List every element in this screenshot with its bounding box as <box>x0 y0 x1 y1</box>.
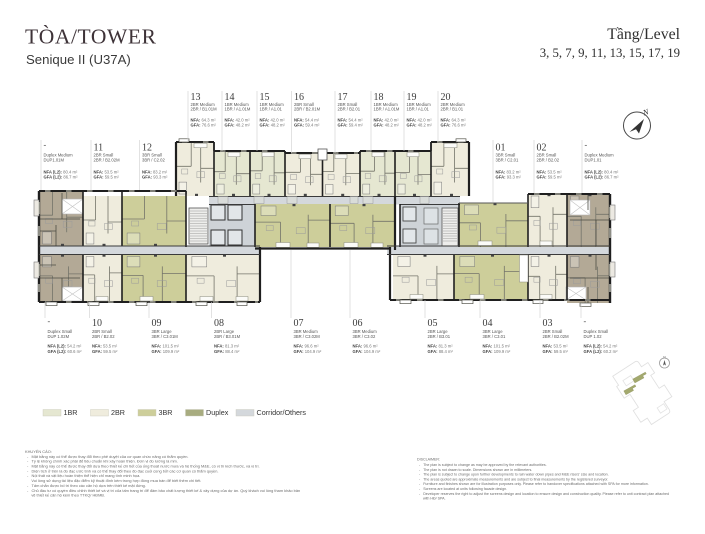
svg-text:07: 07 <box>294 318 304 329</box>
svg-text:GFA: 48.2 m²: GFA: 48.2 m² <box>374 122 400 127</box>
svg-text:3, 5, 7, 9, 11, 13, 15, 17, 19: 3, 5, 7, 9, 11, 13, 15, 17, 19 <box>540 46 680 60</box>
svg-text:NFA: 81.3 m²: NFA: 81.3 m² <box>428 344 454 349</box>
svg-text:NFA: 101.5 m²: NFA: 101.5 m² <box>483 344 511 349</box>
svg-text:- The plan is not drawn to s: - The plan is not drawn to scale. Dimens… <box>419 468 532 472</box>
svg-text:GFA (L2): 86.7 m²: GFA (L2): 86.7 m² <box>585 174 620 179</box>
svg-text:1BR / A1.01: 1BR / A1.01 <box>260 106 283 111</box>
svg-text:2BR / B2.02M: 2BR / B2.02M <box>543 334 570 339</box>
svg-text:- The plan is subject to cha: - The plan is subject to change as may b… <box>419 463 547 467</box>
svg-text:GFA: 59.5 m²: GFA: 59.5 m² <box>537 174 563 179</box>
svg-text:- The areas quoted are appro: - The areas quoted are approximate measu… <box>419 477 608 481</box>
svg-text:2BR / B2.02: 2BR / B2.02 <box>537 158 560 163</box>
svg-text:NFA (L2): 54.2 m²: NFA (L2): 54.2 m² <box>584 344 618 349</box>
svg-text:- Screens are located at uni: - Screens are located at units following… <box>419 487 507 491</box>
svg-text:GFA (L2): 60.6 m²: GFA (L2): 60.6 m² <box>48 349 83 354</box>
svg-text:09: 09 <box>152 318 162 329</box>
svg-text:NFA: 81.3 m²: NFA: 81.3 m² <box>214 344 240 349</box>
svg-text:Senique II (U37A): Senique II (U37A) <box>26 52 131 67</box>
svg-text:1BR / A1.01M: 1BR / A1.01M <box>225 106 251 111</box>
svg-text:GFA: 109.9 m²: GFA: 109.9 m² <box>152 349 180 354</box>
svg-text:GFA: 93.3 m²: GFA: 93.3 m² <box>496 174 522 179</box>
svg-text:04: 04 <box>483 318 493 329</box>
svg-text:DISCLAIMER:: DISCLAIMER: <box>417 458 440 462</box>
svg-text:NFA: 96.6 m²: NFA: 96.6 m² <box>294 344 320 349</box>
svg-text:GFA: 59.5 m²: GFA: 59.5 m² <box>543 349 569 354</box>
svg-text:2BR / B3.01M: 2BR / B3.01M <box>214 334 241 339</box>
svg-text:1BR: 1BR <box>64 408 78 417</box>
svg-text:-: - <box>584 317 587 326</box>
svg-text:-: - <box>44 141 47 150</box>
svg-text:GFA: 104.9 m²: GFA: 104.9 m² <box>353 349 381 354</box>
svg-text:vẽ thiết kế căn hộ kèm theo TT: vẽ thiết kế căn hộ kèm theo TTKQ/ HĐMB. <box>27 493 105 498</box>
svg-text:GFA: 59.4 m²: GFA: 59.4 m² <box>294 122 320 127</box>
svg-text:1BR / A1.01: 1BR / A1.01 <box>407 106 430 111</box>
svg-text:3BR: 3BR <box>159 408 173 417</box>
svg-text:3BR / C3.02M: 3BR / C3.02M <box>294 334 321 339</box>
svg-text:06: 06 <box>353 318 363 329</box>
svg-text:2BR: 2BR <box>111 408 125 417</box>
svg-text:2BR / B2.01M: 2BR / B2.01M <box>294 106 321 111</box>
svg-text:Duplex: Duplex <box>206 408 229 417</box>
svg-text:DUP 1.02: DUP 1.02 <box>584 334 603 339</box>
svg-text:with HĐ/ SPA.: with HĐ/ SPA. <box>419 497 446 501</box>
svg-text:DUP1.01M: DUP1.01M <box>44 158 65 163</box>
svg-text:Corridor/Others: Corridor/Others <box>257 408 307 417</box>
svg-text:DUP 1.02M: DUP 1.02M <box>48 334 70 339</box>
svg-text:- Furniture and finishes sho: - Furniture and finishes shown are for i… <box>419 482 649 486</box>
svg-text:-: - <box>585 141 588 150</box>
svg-text:TÒA/TOWER: TÒA/TOWER <box>25 25 157 49</box>
svg-text:03: 03 <box>543 318 553 329</box>
svg-text:NFA (L2): 54.2 m²: NFA (L2): 54.2 m² <box>48 344 82 349</box>
svg-text:2BR / B3.01: 2BR / B3.01 <box>428 334 451 339</box>
svg-text:NFA: 101.5 m²: NFA: 101.5 m² <box>152 344 180 349</box>
svg-text:GFA: 88.4 m²: GFA: 88.4 m² <box>428 349 454 354</box>
svg-text:2BR / B2.02M: 2BR / B2.02M <box>94 158 121 163</box>
svg-text:Tầng/Level: Tầng/Level <box>607 26 680 43</box>
svg-text:GFA (L2): 86.7 m²: GFA (L2): 86.7 m² <box>44 174 79 179</box>
svg-text:3BR / C2.01: 3BR / C2.01 <box>496 158 519 163</box>
svg-text:GFA: 48.2 m²: GFA: 48.2 m² <box>260 122 286 127</box>
svg-text:-: - <box>48 317 51 326</box>
svg-text:NFA: 53.5 m²: NFA: 53.5 m² <box>543 344 569 349</box>
svg-text:GFA: 48.2 m²: GFA: 48.2 m² <box>407 122 433 127</box>
svg-text:3BR / C3.01: 3BR / C3.01 <box>483 334 506 339</box>
svg-text:10: 10 <box>92 318 102 329</box>
svg-text:08: 08 <box>214 318 224 329</box>
svg-text:GFA: 48.2 m²: GFA: 48.2 m² <box>225 122 251 127</box>
svg-text:2BR / B1.01: 2BR / B1.01 <box>441 106 464 111</box>
svg-text:3BR / C3.01M: 3BR / C3.01M <box>152 334 179 339</box>
svg-text:GFA: 76.6 m²: GFA: 76.6 m² <box>191 122 217 127</box>
svg-text:- Developer reserves the rig: - Developer reserves the right to adjust… <box>419 492 669 496</box>
svg-text:3BR / C3.02: 3BR / C3.02 <box>353 334 376 339</box>
svg-text:NFA: 53.5 m²: NFA: 53.5 m² <box>92 344 118 349</box>
svg-text:NFA: 96.6 m²: NFA: 96.6 m² <box>353 344 379 349</box>
svg-text:2BR / B1.01M: 2BR / B1.01M <box>191 106 218 111</box>
svg-text:GFA: 76.6 m²: GFA: 76.6 m² <box>441 122 467 127</box>
svg-text:GFA: 109.9 m²: GFA: 109.9 m² <box>483 349 511 354</box>
svg-text:GFA: 93.3 m²: GFA: 93.3 m² <box>142 174 168 179</box>
svg-text:GFA: 104.9 m²: GFA: 104.9 m² <box>294 349 322 354</box>
svg-text:05: 05 <box>428 318 438 329</box>
svg-text:GFA: 59.5 m²: GFA: 59.5 m² <box>94 174 120 179</box>
svg-text:GFA: 59.5 m²: GFA: 59.5 m² <box>92 349 118 354</box>
svg-text:1BR / A1.01M: 1BR / A1.01M <box>374 106 400 111</box>
svg-text:2BR / B2.02: 2BR / B2.02 <box>92 334 115 339</box>
svg-text:DUP1.01: DUP1.01 <box>585 158 603 163</box>
svg-text:GFA (L2): 60.2 m²: GFA (L2): 60.2 m² <box>584 349 619 354</box>
svg-text:GFA: 88.4 m²: GFA: 88.4 m² <box>214 349 240 354</box>
svg-text:GFA: 59.4 m²: GFA: 59.4 m² <box>338 122 364 127</box>
svg-text:2BR / B2.01: 2BR / B2.01 <box>338 106 361 111</box>
svg-text:3BR / C2.02: 3BR / C2.02 <box>142 158 165 163</box>
svg-text:- The plan is subject to cha: - The plan is subject to change upon fur… <box>419 473 609 477</box>
